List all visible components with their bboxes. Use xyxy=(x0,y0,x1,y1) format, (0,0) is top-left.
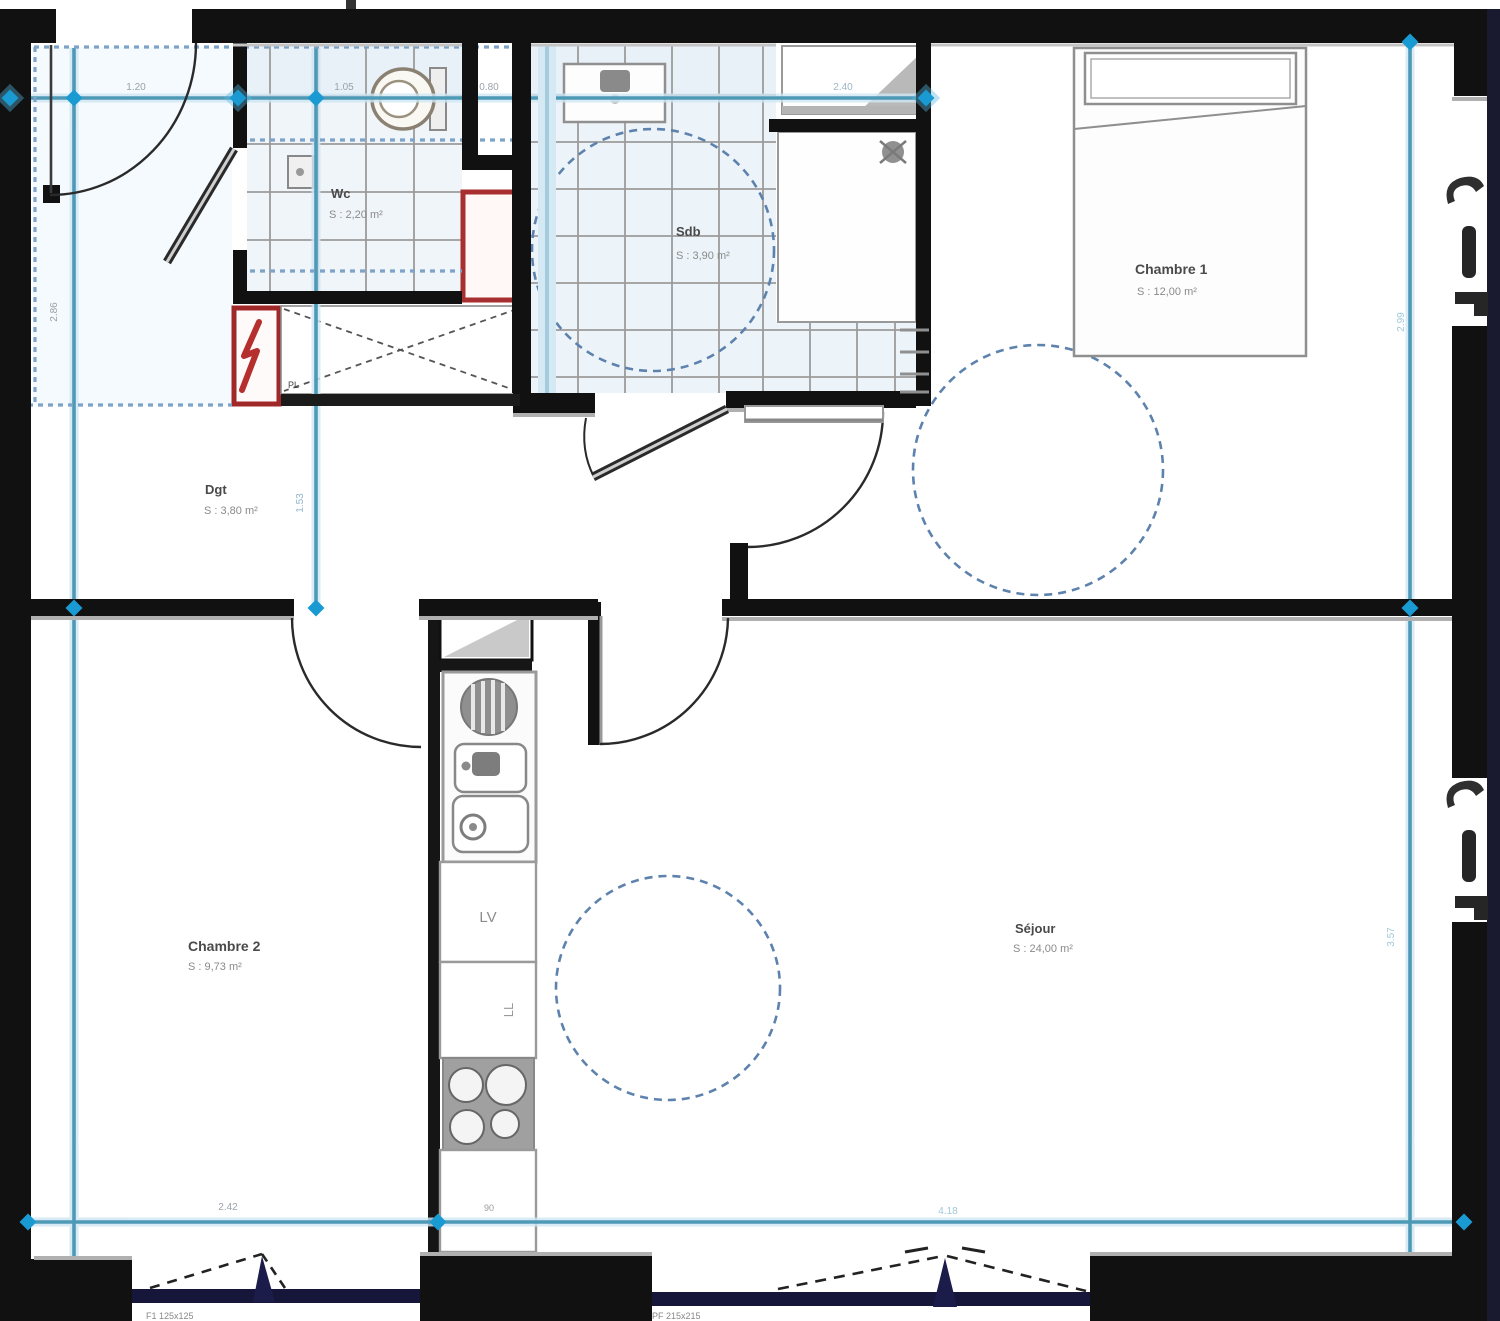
svg-text:2.40: 2.40 xyxy=(833,82,853,93)
svg-text:S : 12,00 m²: S : 12,00 m² xyxy=(1137,286,1197,298)
svg-text:Dgt: Dgt xyxy=(205,482,227,497)
svg-text:S : 2,20 m²: S : 2,20 m² xyxy=(329,209,383,221)
svg-text:90: 90 xyxy=(484,1203,494,1213)
svg-text:0.80: 0.80 xyxy=(479,82,499,93)
svg-text:Wc: Wc xyxy=(331,186,351,201)
svg-text:S : 24,00 m²: S : 24,00 m² xyxy=(1013,943,1073,955)
svg-text:PL: PL xyxy=(288,380,299,390)
svg-text:Chambre 1: Chambre 1 xyxy=(1135,261,1208,277)
svg-text:Sdb: Sdb xyxy=(676,224,701,239)
svg-text:S : 3,90 m²: S : 3,90 m² xyxy=(676,250,730,262)
svg-text:LL: LL xyxy=(501,1003,516,1017)
svg-text:4.18: 4.18 xyxy=(938,1206,958,1217)
svg-text:LV: LV xyxy=(479,909,496,926)
svg-text:1.53: 1.53 xyxy=(295,493,306,513)
svg-text:Séjour: Séjour xyxy=(1015,921,1055,936)
svg-text:Chambre 2: Chambre 2 xyxy=(188,938,261,954)
svg-text:2.99: 2.99 xyxy=(1396,312,1407,332)
svg-text:PF 215x215: PF 215x215 xyxy=(652,1311,701,1321)
svg-text:2.42: 2.42 xyxy=(218,1202,238,1213)
svg-text:2.86: 2.86 xyxy=(49,302,60,322)
svg-text:1.20: 1.20 xyxy=(126,82,146,93)
svg-text:S : 9,73 m²: S : 9,73 m² xyxy=(188,961,242,973)
svg-text:1.05: 1.05 xyxy=(334,82,354,93)
svg-text:F1 125x125: F1 125x125 xyxy=(146,1311,194,1321)
svg-text:S : 3,80 m²: S : 3,80 m² xyxy=(204,505,258,517)
svg-text:3.57: 3.57 xyxy=(1386,927,1397,947)
